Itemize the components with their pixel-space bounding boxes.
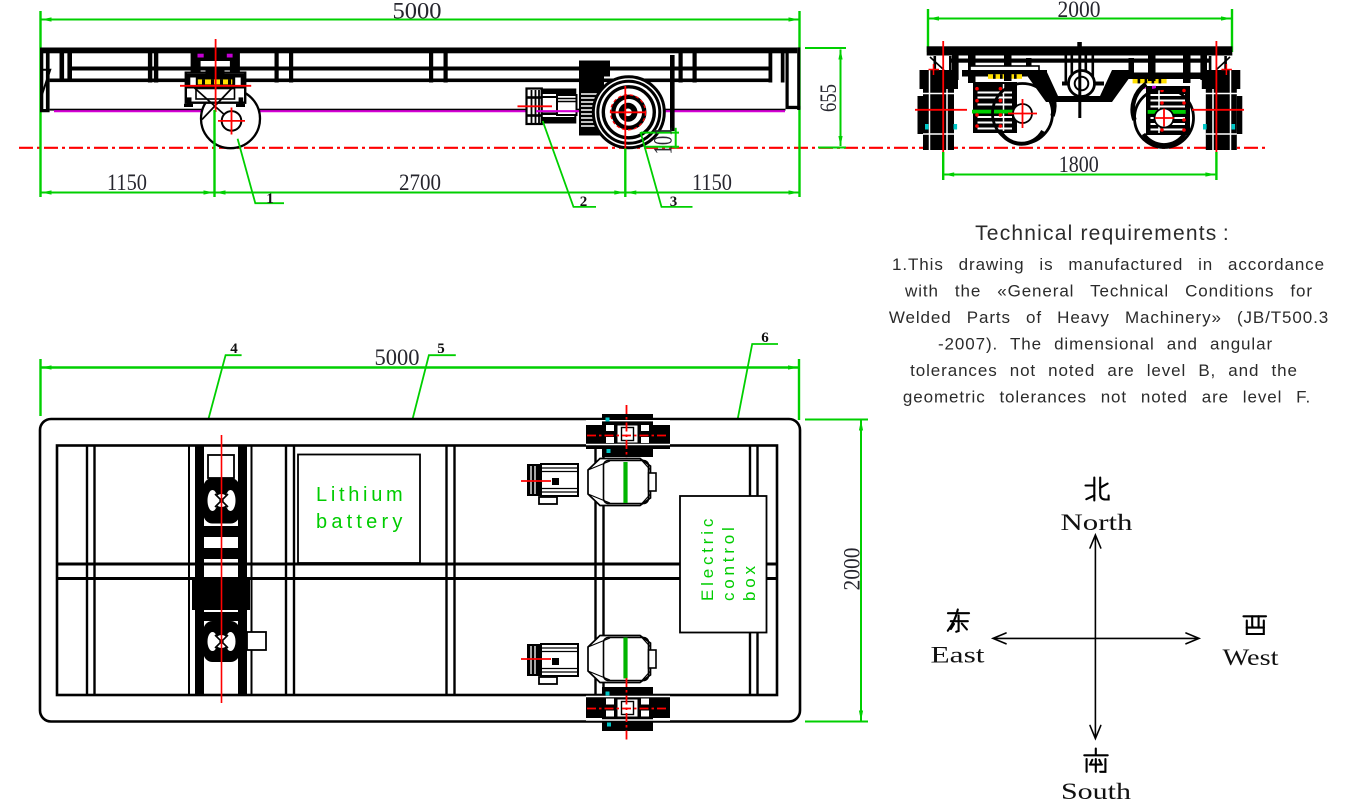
svg-text:Lithium: Lithium xyxy=(316,484,406,506)
svg-text:655: 655 xyxy=(816,84,841,112)
svg-text:control: control xyxy=(719,523,738,601)
svg-text:2700: 2700 xyxy=(399,170,441,195)
svg-text:-2007). The dimensional and an: -2007). The dimensional and angular xyxy=(938,335,1273,354)
svg-text:Technical requirements :: Technical requirements : xyxy=(975,222,1230,245)
svg-text:3: 3 xyxy=(670,194,678,210)
svg-text:geometric tolerances not noted: geometric tolerances not noted are level… xyxy=(903,388,1311,407)
svg-text:4: 4 xyxy=(230,341,238,357)
svg-text:2000: 2000 xyxy=(840,548,865,591)
svg-text:2000: 2000 xyxy=(1058,0,1101,22)
svg-text:Electric: Electric xyxy=(698,515,717,601)
svg-text:101: 101 xyxy=(649,127,678,155)
svg-text:with the «General Technical Co: with the «General Technical Conditions f… xyxy=(904,282,1313,301)
svg-text:1.This drawing is manufactured: 1.This drawing is manufactured in accord… xyxy=(892,255,1325,274)
svg-text:1150: 1150 xyxy=(692,170,732,195)
svg-text:Welded Parts of Heavy Machiner: Welded Parts of Heavy Machinery» (JB/T50… xyxy=(889,308,1329,327)
svg-text:1: 1 xyxy=(266,191,274,207)
svg-text:1150: 1150 xyxy=(107,170,147,195)
svg-text:5000: 5000 xyxy=(375,345,420,370)
svg-text:West: West xyxy=(1223,645,1280,670)
svg-text:6: 6 xyxy=(761,330,769,346)
svg-text:South: South xyxy=(1061,779,1132,801)
svg-text:1800: 1800 xyxy=(1059,152,1099,177)
svg-text:5000: 5000 xyxy=(393,0,442,23)
svg-text:North: North xyxy=(1061,510,1134,535)
svg-text:East: East xyxy=(931,643,986,668)
svg-text:5: 5 xyxy=(437,341,445,357)
svg-text:2: 2 xyxy=(580,194,588,210)
svg-text:box: box xyxy=(740,562,759,601)
svg-text:battery: battery xyxy=(316,511,407,533)
svg-text:tolerances not noted are level: tolerances not noted are level B, and th… xyxy=(910,361,1298,380)
